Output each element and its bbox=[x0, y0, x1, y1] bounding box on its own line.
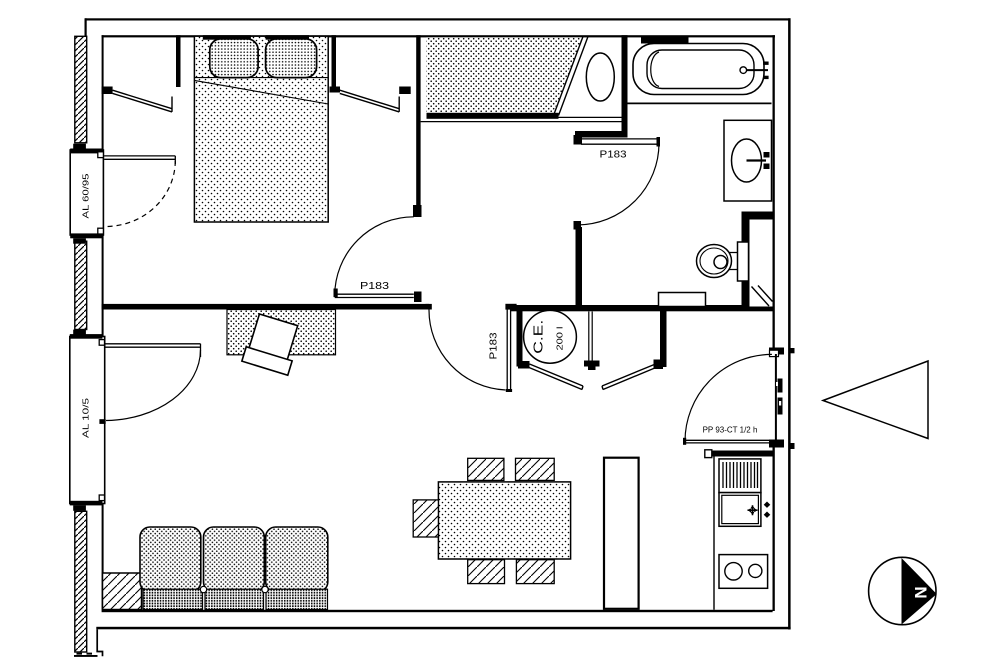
svg-text:C.E.: C.E. bbox=[531, 320, 546, 354]
svg-text:AL 60/95: AL 60/95 bbox=[81, 173, 91, 218]
svg-text:P183: P183 bbox=[488, 332, 500, 359]
svg-text:P183: P183 bbox=[600, 149, 627, 161]
svg-text:200 l: 200 l bbox=[556, 326, 565, 350]
svg-text:AL 10/5: AL 10/5 bbox=[81, 398, 91, 438]
svg-text:PP 93-CT 1/2 h: PP 93-CT 1/2 h bbox=[703, 426, 758, 435]
svg-text:N: N bbox=[911, 586, 930, 598]
svg-text:P183: P183 bbox=[360, 280, 389, 292]
